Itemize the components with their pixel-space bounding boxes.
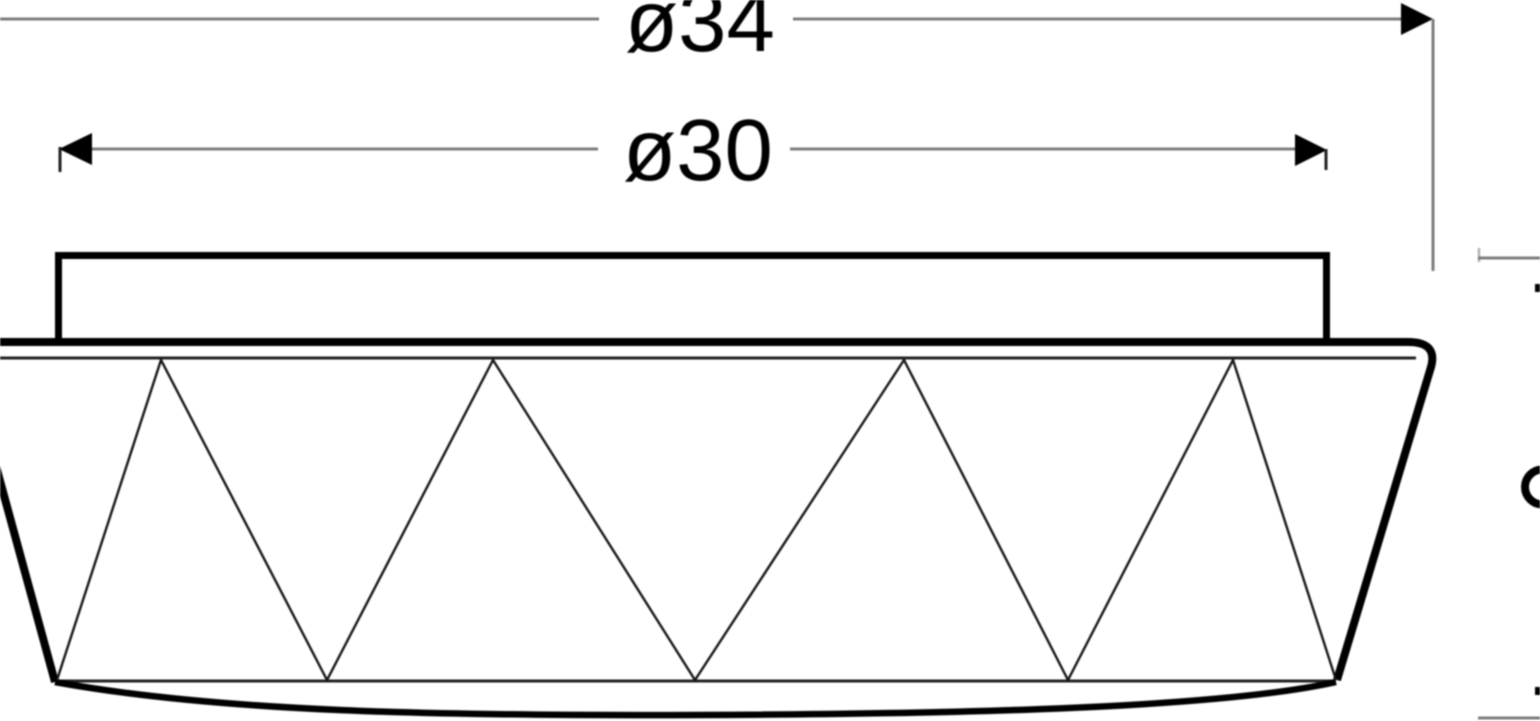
svg-text:ø30: ø30 — [623, 102, 773, 199]
svg-text:ø34: ø34 — [625, 0, 775, 70]
